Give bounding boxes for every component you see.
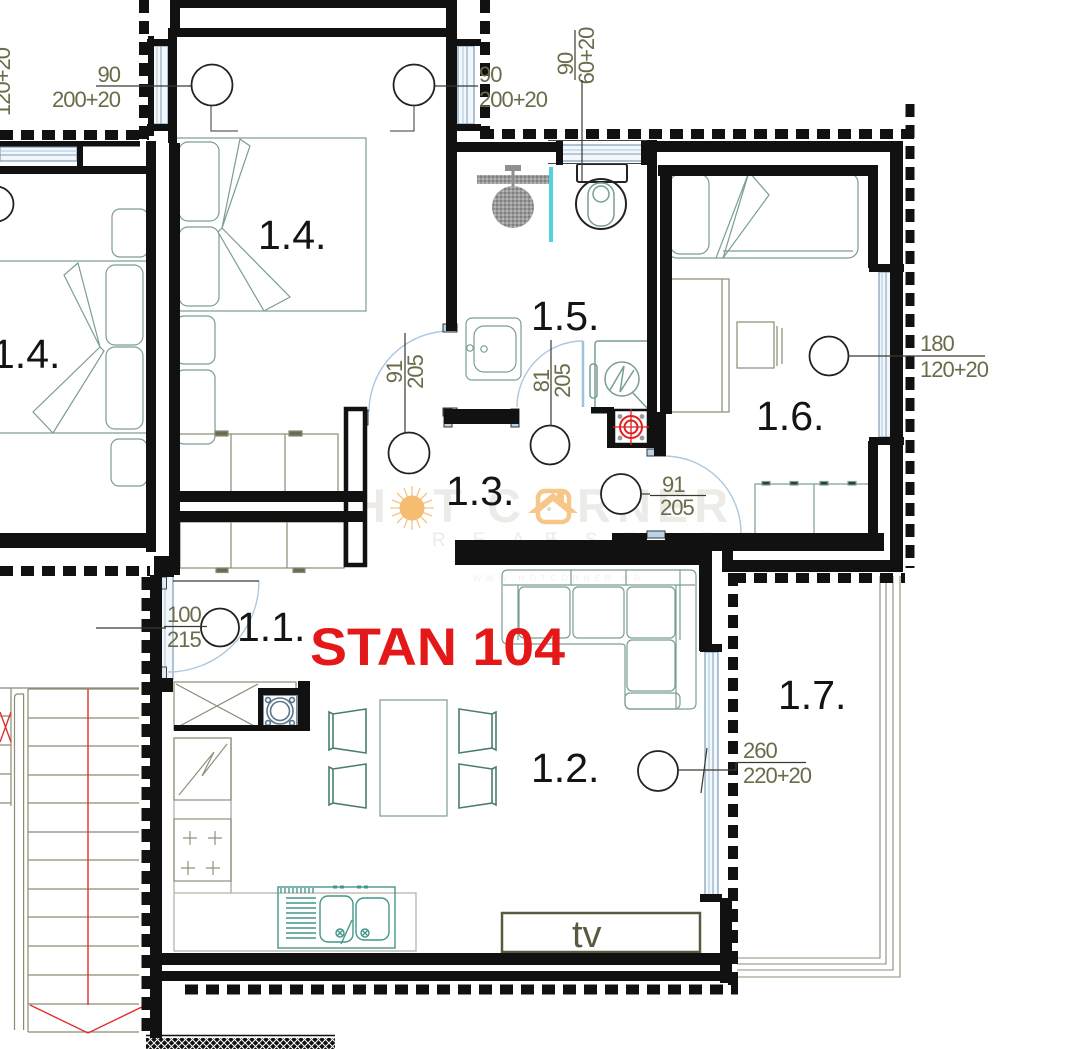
svg-text:W W W . H O T C O R N E R . H: W W W . H O T C O R N E R . H R	[473, 573, 641, 583]
svg-text:260: 260	[743, 738, 777, 763]
svg-text:1.2.: 1.2.	[531, 745, 599, 791]
svg-text:1.7.: 1.7.	[778, 672, 846, 718]
svg-text:205: 205	[550, 363, 575, 397]
svg-text:180: 180	[920, 331, 954, 356]
svg-text:RNER: RNER	[577, 479, 734, 532]
svg-text:1.5.: 1.5.	[531, 293, 599, 339]
svg-text:200+20: 200+20	[52, 87, 121, 112]
svg-text:120+20: 120+20	[920, 357, 989, 382]
svg-text:1.3.: 1.3.	[446, 468, 514, 514]
svg-text:205: 205	[403, 354, 428, 388]
svg-text:120+20: 120+20	[0, 47, 15, 116]
svg-text:215: 215	[167, 627, 201, 652]
svg-text:100: 100	[167, 602, 201, 627]
svg-text:90: 90	[479, 62, 502, 87]
svg-text:60+20: 60+20	[574, 27, 599, 85]
svg-text:1.6.: 1.6.	[756, 393, 824, 439]
svg-text:STAN 104: STAN 104	[310, 618, 566, 677]
svg-text:tv: tv	[572, 914, 602, 956]
svg-text:1.4.: 1.4.	[0, 331, 60, 377]
svg-text:90: 90	[98, 62, 121, 87]
svg-text:1.4.: 1.4.	[258, 212, 326, 258]
svg-text:220+20: 220+20	[743, 763, 812, 788]
svg-text:91: 91	[662, 472, 685, 497]
svg-text:1.1.: 1.1.	[237, 604, 305, 650]
svg-text:200+20: 200+20	[479, 87, 548, 112]
svg-text:205: 205	[660, 495, 694, 520]
